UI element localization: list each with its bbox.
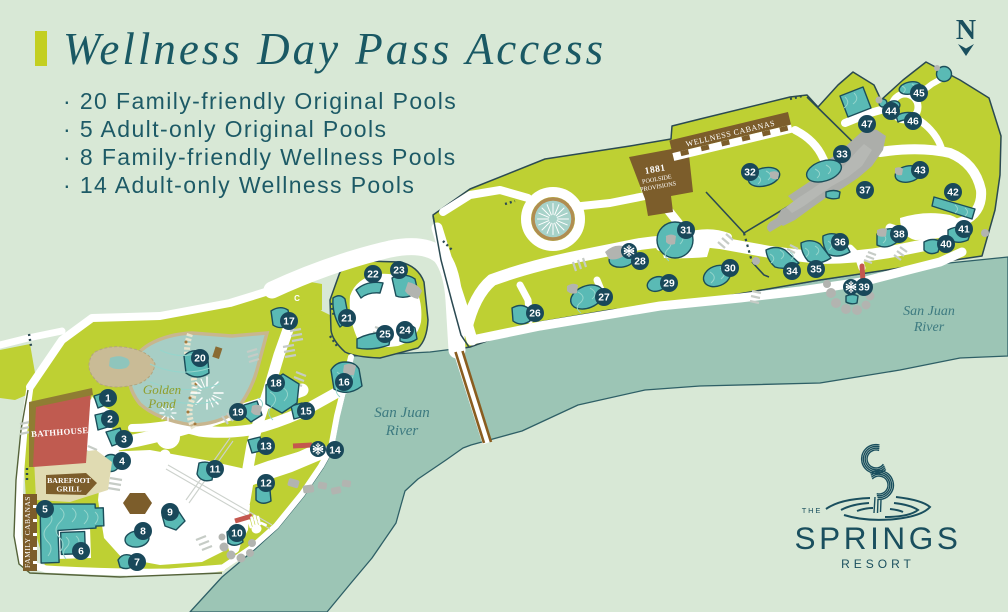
- svg-text:RESORT: RESORT: [841, 557, 915, 571]
- svg-text:6: 6: [78, 547, 84, 558]
- svg-text:11: 11: [210, 465, 221, 476]
- svg-text:14: 14: [329, 446, 341, 457]
- svg-text:5: 5: [42, 505, 48, 516]
- svg-text:19: 19: [232, 408, 244, 419]
- svg-text:32: 32: [744, 168, 756, 179]
- svg-text:47: 47: [861, 120, 873, 131]
- svg-text:22: 22: [367, 270, 379, 281]
- svg-text:37: 37: [859, 186, 871, 197]
- svg-text:21: 21: [341, 314, 353, 325]
- svg-text:27: 27: [598, 293, 610, 304]
- svg-text:1: 1: [105, 394, 111, 405]
- svg-text:20: 20: [194, 354, 206, 365]
- svg-text:18: 18: [270, 379, 282, 390]
- svg-text:· 14 Adult-only Wellness Pools: · 14 Adult-only Wellness Pools: [63, 172, 415, 198]
- svg-text:41: 41: [958, 225, 970, 236]
- svg-text:30: 30: [724, 264, 736, 275]
- svg-text:31: 31: [680, 226, 692, 237]
- svg-text:San Juan: San Juan: [903, 304, 955, 319]
- svg-text:· 20 Family-friendly Original: · 20 Family-friendly Original Pools: [63, 88, 457, 114]
- svg-text:29: 29: [663, 279, 675, 290]
- svg-text:River: River: [385, 423, 419, 439]
- svg-text:· 5 Adult-only Original Pools: · 5 Adult-only Original Pools: [63, 116, 387, 142]
- svg-text:4: 4: [119, 457, 125, 468]
- svg-text:N: N: [956, 15, 976, 46]
- svg-text:San Juan: San Juan: [374, 405, 429, 421]
- svg-text:34: 34: [786, 267, 798, 278]
- svg-text:36: 36: [834, 238, 846, 249]
- svg-text:40: 40: [940, 240, 952, 251]
- svg-text:13: 13: [260, 442, 272, 453]
- svg-text:GRILL: GRILL: [56, 485, 81, 494]
- svg-text:25: 25: [379, 330, 391, 341]
- svg-text:THE: THE: [802, 506, 822, 515]
- svg-text:SPRINGS: SPRINGS: [795, 520, 962, 556]
- svg-text:24: 24: [399, 326, 411, 337]
- svg-text:45: 45: [913, 89, 925, 100]
- svg-text:8: 8: [140, 527, 146, 538]
- svg-text:44: 44: [885, 107, 897, 118]
- svg-text:Wellness Day Pass Access: Wellness Day Pass Access: [63, 24, 606, 74]
- svg-text:26: 26: [529, 309, 541, 320]
- svg-text:23: 23: [393, 266, 405, 277]
- svg-text:10: 10: [231, 529, 243, 540]
- svg-text:River: River: [913, 320, 945, 335]
- svg-text:43: 43: [914, 166, 926, 177]
- svg-text:7: 7: [134, 558, 140, 569]
- svg-text:C: C: [294, 294, 300, 303]
- svg-text:15: 15: [300, 407, 312, 418]
- svg-text:38: 38: [893, 230, 905, 241]
- svg-text:12: 12: [260, 479, 272, 490]
- svg-text:FAMILY CABANAS: FAMILY CABANAS: [23, 496, 32, 568]
- svg-text:2: 2: [107, 415, 113, 426]
- svg-text:33: 33: [836, 150, 848, 161]
- svg-text:46: 46: [907, 117, 919, 128]
- svg-text:3: 3: [121, 435, 127, 446]
- svg-text:17: 17: [283, 317, 295, 328]
- svg-text:· 8 Family-friendly Wellness P: · 8 Family-friendly Wellness Pools: [63, 144, 457, 170]
- svg-text:16: 16: [338, 378, 350, 389]
- svg-text:28: 28: [634, 257, 646, 268]
- svg-text:35: 35: [810, 265, 822, 276]
- svg-text:39: 39: [858, 283, 870, 294]
- svg-text:9: 9: [167, 508, 173, 519]
- svg-text:42: 42: [947, 188, 959, 199]
- svg-text:Pond: Pond: [147, 396, 176, 411]
- svg-text:Golden: Golden: [143, 382, 181, 397]
